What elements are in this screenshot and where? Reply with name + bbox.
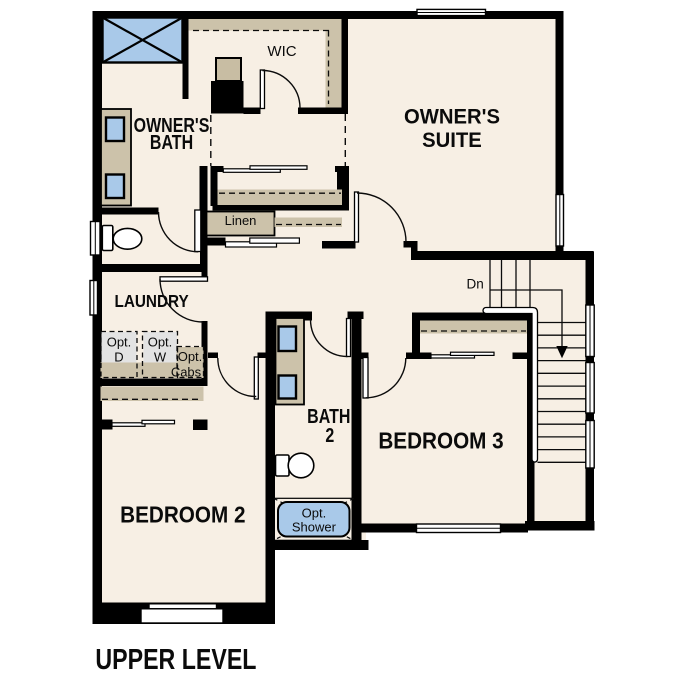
svg-text:Shower: Shower: [292, 520, 337, 535]
svg-text:D: D: [114, 350, 123, 365]
svg-text:UPPER LEVEL: UPPER LEVEL: [95, 642, 256, 675]
svg-text:LAUNDRY: LAUNDRY: [115, 291, 189, 311]
svg-text:WIC: WIC: [267, 43, 296, 60]
svg-text:Cabs: Cabs: [171, 365, 202, 380]
svg-text:Opt.: Opt.: [107, 335, 132, 350]
svg-text:Linen: Linen: [225, 213, 257, 228]
svg-text:SUITE: SUITE: [422, 129, 482, 152]
svg-text:2: 2: [325, 424, 334, 446]
svg-text:Opt.: Opt.: [302, 506, 327, 521]
svg-text:OWNER'S: OWNER'S: [404, 105, 500, 128]
svg-text:Opt.: Opt.: [148, 335, 173, 350]
svg-text:Opt.: Opt.: [178, 349, 203, 364]
svg-text:W: W: [154, 350, 167, 365]
svg-text:BATH: BATH: [150, 130, 193, 153]
svg-text:Dn: Dn: [467, 277, 484, 292]
svg-text:BEDROOM 3: BEDROOM 3: [378, 427, 503, 453]
svg-text:BEDROOM 2: BEDROOM 2: [120, 502, 245, 528]
